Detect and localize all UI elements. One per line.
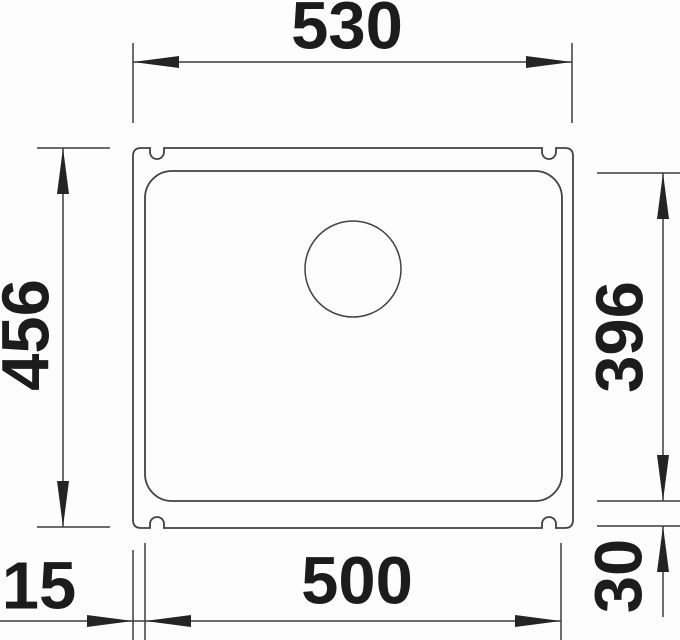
arrowhead-down: [657, 455, 669, 501]
arrowhead-right: [526, 56, 572, 68]
overall-width-value: 530: [291, 0, 403, 60]
arrowhead-right: [87, 615, 133, 627]
sink-dimension-diagram: 530 456 396 500 15 30: [0, 0, 680, 640]
arrowhead-up: [657, 173, 669, 219]
arrowhead-up: [57, 148, 69, 194]
arrowhead-left: [133, 56, 179, 68]
overall-depth-value: 456: [0, 279, 60, 391]
arrowhead-down: [57, 481, 69, 527]
arrowhead-left: [145, 615, 191, 627]
arrowhead-right: [515, 615, 561, 627]
drain-circle: [305, 221, 401, 317]
bowl-width-value: 500: [301, 548, 413, 615]
rim-offset-bottom-value: 30: [586, 539, 653, 614]
sink-outline-group: [133, 148, 573, 528]
rim-offset-side-value: 15: [2, 553, 77, 620]
arrowhead-up: [657, 526, 669, 572]
sink-rim-outline: [133, 148, 573, 528]
bowl-depth-value: 396: [587, 281, 654, 393]
